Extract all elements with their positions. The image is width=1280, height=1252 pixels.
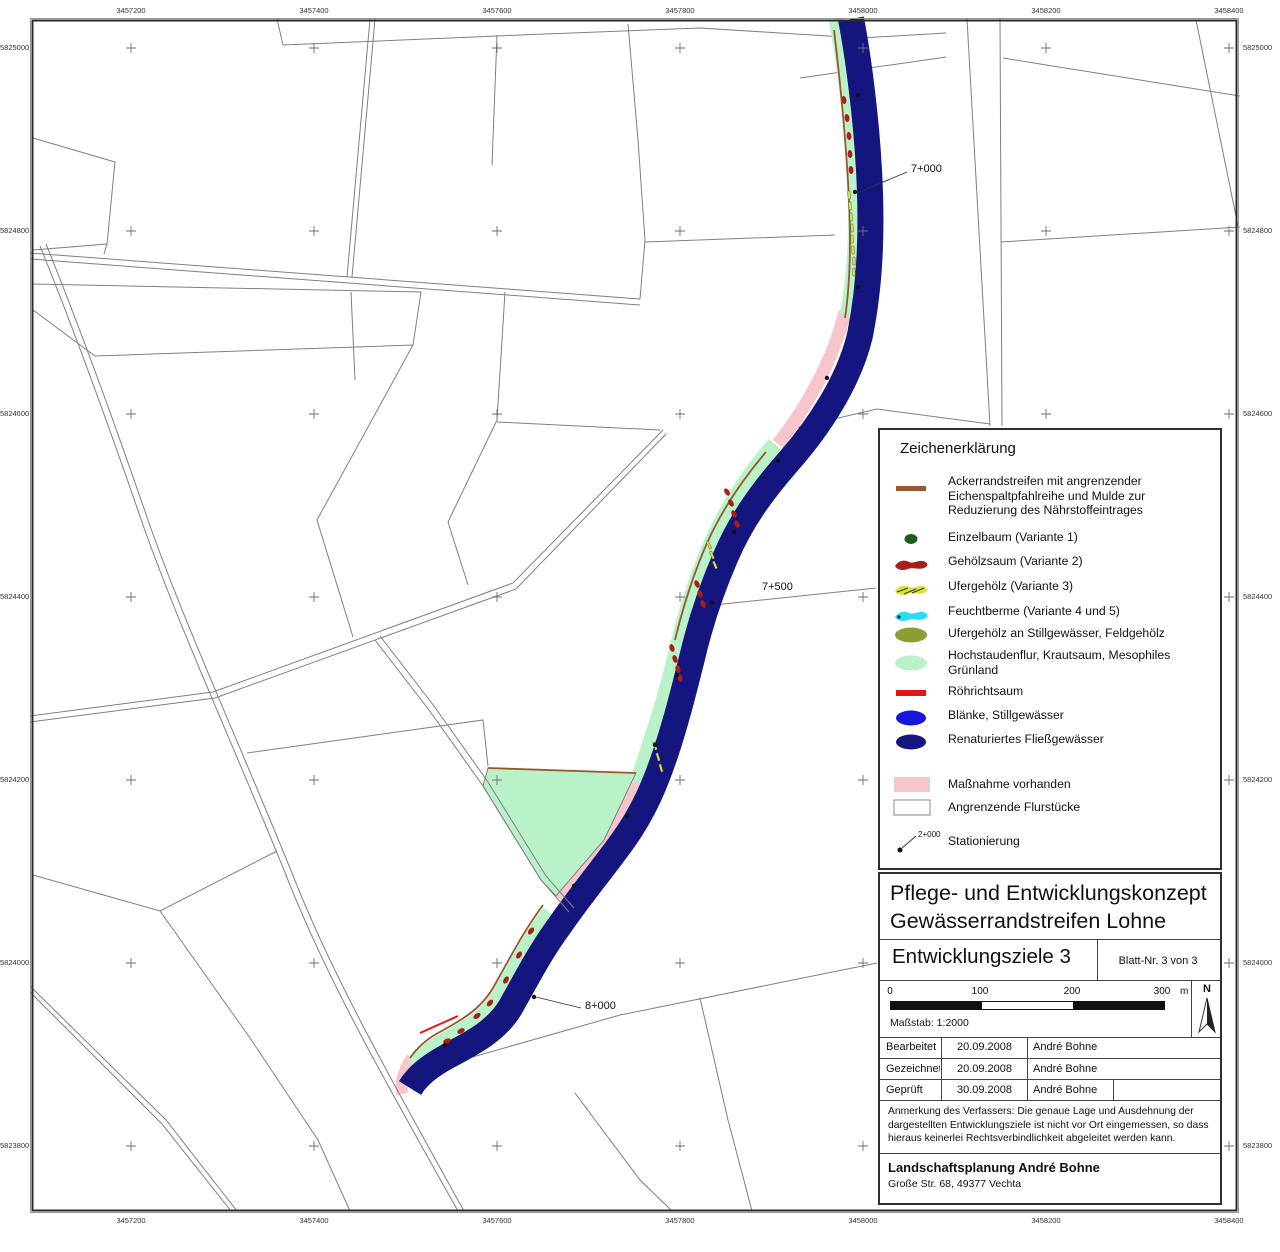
table-date: 20.09.2008 — [942, 1059, 1027, 1080]
north-arrow-icon — [1193, 996, 1221, 1036]
easting-label: 3458400 — [1207, 6, 1251, 15]
easting-label: 3457800 — [658, 1216, 702, 1225]
company-name: Landschaftsplanung André Bohne — [888, 1160, 1100, 1175]
scale-tick-0: 0 — [875, 986, 905, 997]
sheet-number: Blatt-Nr. 3 von 3 — [1096, 955, 1220, 967]
scale-tick-200: 200 — [1057, 986, 1087, 997]
table-date: 30.09.2008 — [942, 1080, 1027, 1101]
scale-bar-segment — [891, 1002, 982, 1009]
table-role: Gezeichnet — [886, 1059, 940, 1080]
legend-item-label: Feuchtberme (Variante 4 und 5) — [948, 604, 1183, 619]
legend-item-label: Röhrichtsaum — [948, 684, 1183, 699]
map-sheet: { "page": {"background": "#ffffff"}, "ma… — [0, 0, 1280, 1252]
legend-item-label: Angrenzende Flurstücke — [948, 800, 1183, 815]
stationierung-example-label: 2+000 — [918, 830, 940, 839]
legend-item-label: Einzelbaum (Variante 1) — [948, 530, 1183, 545]
table-date: 20.09.2008 — [942, 1037, 1027, 1058]
northing-label: 5825000 — [0, 43, 27, 52]
table-name: André Bohne — [1033, 1059, 1183, 1080]
easting-label: 3457200 — [109, 1216, 153, 1225]
fliessgewaesser-swatch — [892, 731, 932, 753]
legend-item-label: Ufergehölz (Variante 3) — [948, 579, 1183, 594]
ufergehoelz-stillgewaesser-swatch — [892, 624, 932, 646]
scale-label: Maßstab: 1:2000 — [890, 1017, 969, 1029]
table-role: Geprüft — [886, 1080, 940, 1101]
northing-label: 5824600 — [0, 409, 27, 418]
easting-label: 3457600 — [475, 6, 519, 15]
scale-bar — [890, 1001, 1165, 1010]
easting-label: 3458000 — [841, 6, 885, 15]
northing-label: 5824400 — [1243, 592, 1277, 601]
flurstuecke-swatch — [892, 797, 932, 819]
legend: Zeichenerklärung Ackerrandstreifen mit a… — [878, 428, 1222, 870]
northing-label: 5824200 — [1243, 775, 1277, 784]
author-note: Anmerkung des Verfassers: Die genaue Lag… — [888, 1105, 1216, 1146]
massnahme-swatch — [892, 774, 932, 796]
gehoelzsaum-swatch — [892, 553, 932, 575]
legend-item-label: Ufergehölz an Stillgewässer, Feldgehölz — [948, 626, 1183, 641]
easting-label: 3458200 — [1024, 1216, 1068, 1225]
easting-label: 3457400 — [292, 1216, 336, 1225]
legend-item-label: Gehölzsaum (Variante 2) — [948, 554, 1183, 569]
sheet-subtitle: Entwicklungsziele 3 — [892, 945, 1071, 969]
feuchtberme-swatch — [892, 603, 932, 625]
northing-label: 5823800 — [1243, 1141, 1277, 1150]
table-role: Bearbeitet — [886, 1037, 940, 1058]
station-label-7500: 7+500 — [762, 581, 793, 593]
easting-label: 3457800 — [658, 6, 702, 15]
legend-item-label: Ackerrandstreifen mit angrenzender Eiche… — [948, 474, 1183, 518]
sheet-title-line2: Gewässerrandstreifen Lohne — [890, 907, 1220, 935]
gehoelzsaum-blobs — [442, 96, 853, 1045]
northing-label: 5824600 — [1243, 409, 1277, 418]
sheet-title-line1: Pflege- und Entwicklungskonzept — [890, 879, 1220, 907]
legend-title: Zeichenerklärung — [900, 440, 1016, 457]
scale-tick-300: 300 — [1147, 986, 1177, 997]
sheet-title: Pflege- und Entwicklungskonzept Gewässer… — [890, 879, 1220, 935]
northing-label: 5825000 — [1243, 43, 1277, 52]
easting-label: 3458000 — [841, 1216, 885, 1225]
easting-label: 3457400 — [292, 6, 336, 15]
easting-label: 3458400 — [1207, 1216, 1251, 1225]
northing-label: 5824800 — [0, 226, 27, 235]
northing-label: 5824400 — [0, 592, 27, 601]
legend-item-label: Maßnahme vorhanden — [948, 777, 1183, 792]
scale-tick-100: 100 — [965, 986, 995, 997]
northing-label: 5824000 — [1243, 958, 1277, 967]
station-label-8000: 8+000 — [585, 1000, 616, 1012]
table-name: André Bohne — [1033, 1080, 1111, 1101]
roehrichtsaum-swatch — [892, 682, 932, 704]
legend-item-label: Stationierung — [948, 834, 1183, 849]
easting-label: 3457200 — [109, 6, 153, 15]
blaenke-swatch — [892, 707, 932, 729]
measure-existing-strips — [401, 312, 845, 1094]
legend-item-label: Hochstaudenflur, Krautsaum, Mesophiles G… — [948, 648, 1183, 677]
title-block: Pflege- und Entwicklungskonzept Gewässer… — [878, 872, 1222, 1205]
legend-item-label: Renaturiertes Fließgewässer — [948, 732, 1183, 747]
field-margin-lines — [410, 30, 850, 1058]
river-band — [410, 19, 870, 1088]
northing-label: 5823800 — [0, 1141, 27, 1150]
hochstaudenflur-swatch — [892, 652, 932, 674]
scale-bar-segment — [1073, 1002, 1164, 1009]
easting-label: 3458200 — [1024, 6, 1068, 15]
northing-label: 5824000 — [0, 958, 27, 967]
scale-unit: m — [1180, 986, 1188, 997]
herb-fringe-strips — [414, 19, 856, 1066]
northing-label: 5824800 — [1243, 226, 1277, 235]
ufergehoelz-swatch — [892, 578, 932, 600]
north-label: N — [1192, 983, 1222, 995]
easting-label: 3457600 — [475, 1216, 519, 1225]
station-label-7000: 7+000 — [911, 163, 942, 175]
scale-bar-segment — [982, 1002, 1073, 1009]
legend-item-label: Blänke, Stillgewässer — [948, 708, 1183, 723]
company-address: Große Str. 68, 49377 Vechta — [888, 1178, 1021, 1190]
ackerrandstreifen-swatch — [892, 478, 932, 500]
northing-label: 5824200 — [0, 775, 27, 784]
einzelbaum-swatch — [892, 528, 932, 550]
table-name: André Bohne — [1033, 1037, 1183, 1058]
